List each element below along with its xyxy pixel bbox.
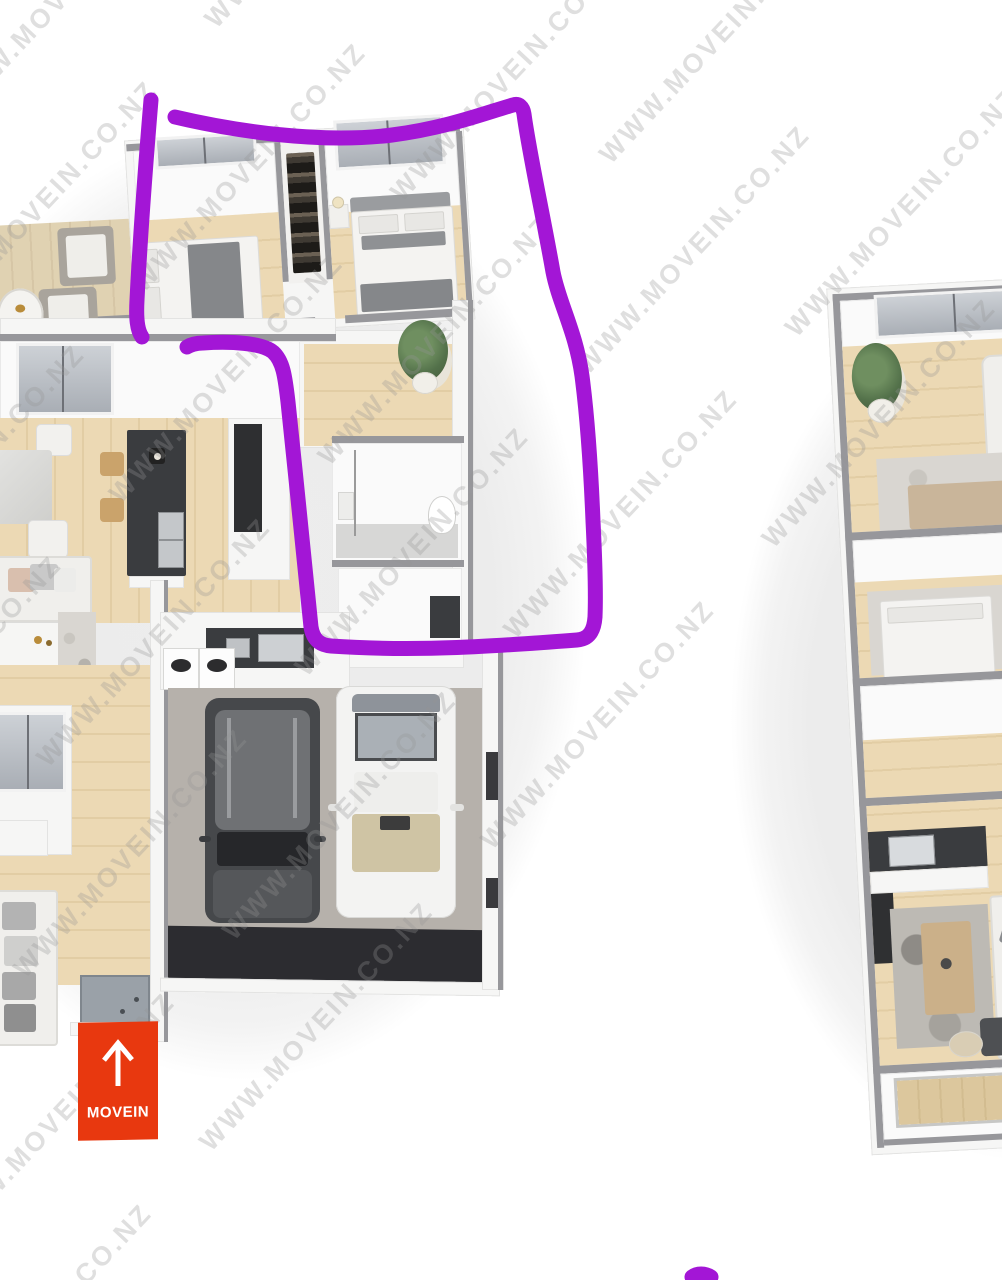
annotation-stroke-dot [692,1274,711,1277]
movein-logo: MOVEIN [78,1021,158,1140]
floorplan-screenshot: WWW.MOVEIN.CO.NZWWW.MOVEIN.CO.NZWWW.MOVE… [0,0,1002,1280]
annotation-stroke-outline [175,104,595,648]
annotation-stroke-left [137,100,151,337]
movein-label: MOVEIN [87,1103,149,1121]
up-arrow-icon [96,1034,140,1091]
